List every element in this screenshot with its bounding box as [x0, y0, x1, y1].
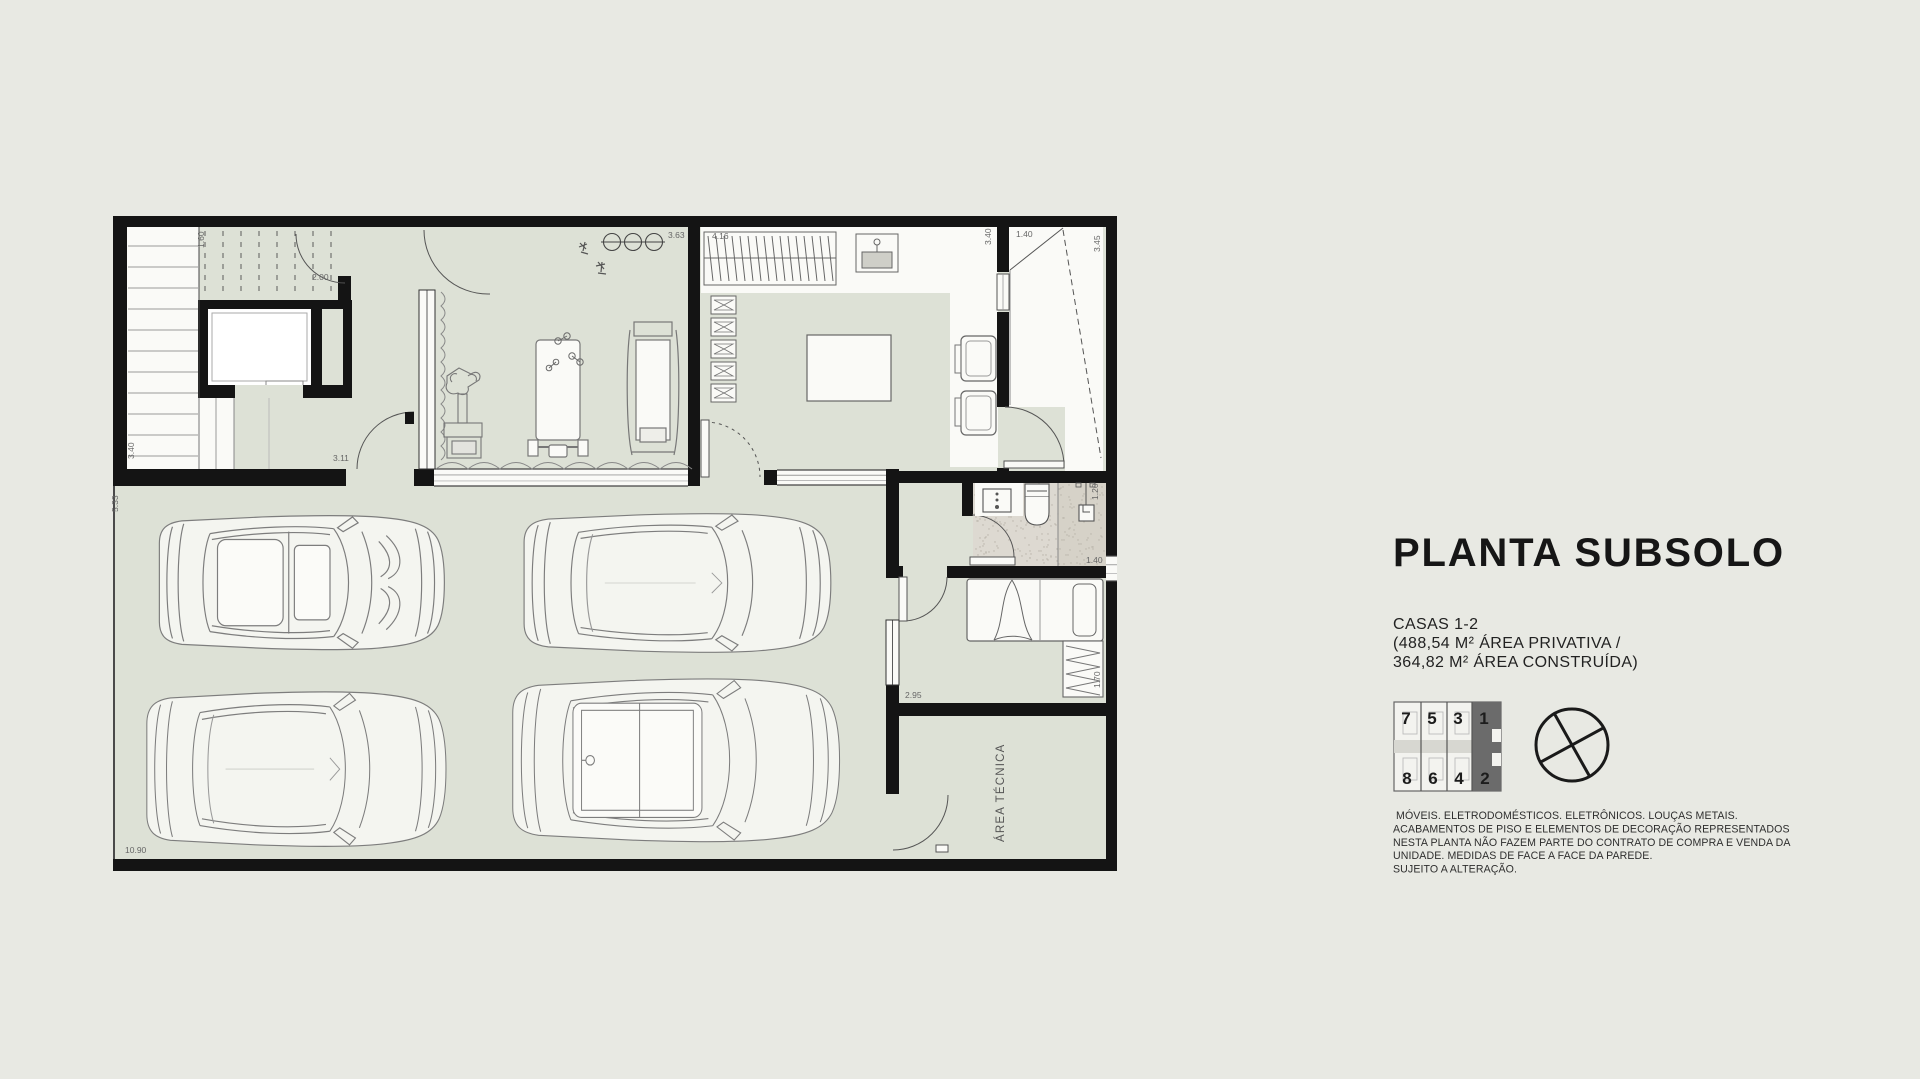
svg-text:1.20: 1.20 [1090, 483, 1100, 500]
svg-text:364,82 M² ÁREA CONSTRUÍDA): 364,82 M² ÁREA CONSTRUÍDA) [1393, 652, 1638, 671]
svg-text:3.40: 3.40 [126, 442, 136, 459]
svg-text:8: 8 [1402, 769, 1411, 788]
svg-text:PLANTA SUBSOLO: PLANTA SUBSOLO [1393, 531, 1785, 575]
svg-text:1.40: 1.40 [1086, 555, 1103, 565]
svg-text:3.45: 3.45 [1092, 235, 1102, 252]
svg-text:4.16: 4.16 [712, 231, 729, 241]
svg-text:3.11: 3.11 [333, 453, 349, 463]
svg-text:(488,54 M² ÁREA PRIVATIVA /: (488,54 M² ÁREA PRIVATIVA / [1393, 633, 1621, 652]
svg-text:2.00: 2.00 [312, 272, 329, 282]
svg-text:SUJEITO A ALTERAÇÃO.: SUJEITO A ALTERAÇÃO. [1393, 863, 1517, 876]
svg-text:3.40: 3.40 [983, 228, 993, 245]
svg-text:7: 7 [1401, 709, 1410, 728]
svg-text:ACABAMENTOS DE PISO E ELEMENTO: ACABAMENTOS DE PISO E ELEMENTOS DE DECOR… [1393, 822, 1790, 835]
svg-text:ÁREA TÉCNICA: ÁREA TÉCNICA [994, 743, 1007, 842]
svg-text:3.63: 3.63 [668, 230, 685, 240]
svg-text:UNIDADE. MEDIDAS DE FACE A FAC: UNIDADE. MEDIDAS DE FACE A FACE DA PARED… [1393, 850, 1653, 862]
svg-text:1.60: 1.60 [196, 231, 206, 248]
svg-text:NESTA PLANTA NÃO FAZEM PARTE D: NESTA PLANTA NÃO FAZEM PARTE DO CONTRATO… [1393, 836, 1791, 849]
svg-text:1.40: 1.40 [1016, 229, 1033, 239]
svg-text:2.95: 2.95 [905, 690, 922, 700]
svg-text:4: 4 [1454, 769, 1464, 788]
svg-text:5: 5 [1427, 709, 1436, 728]
svg-text:CASAS 1-2: CASAS 1-2 [1393, 616, 1478, 633]
svg-text:1: 1 [1479, 709, 1488, 728]
svg-text:5.33: 5.33 [110, 495, 120, 512]
svg-text:1.70: 1.70 [1092, 671, 1102, 688]
svg-text:3: 3 [1453, 709, 1462, 728]
svg-text:10.90: 10.90 [125, 845, 147, 855]
svg-text:2: 2 [1480, 769, 1489, 788]
svg-text:MÓVEIS. ELETRODOMÉSTICOS. ELET: MÓVEIS. ELETRODOMÉSTICOS. ELETRÔNICOS. L… [1393, 809, 1738, 822]
svg-text:6: 6 [1428, 769, 1437, 788]
